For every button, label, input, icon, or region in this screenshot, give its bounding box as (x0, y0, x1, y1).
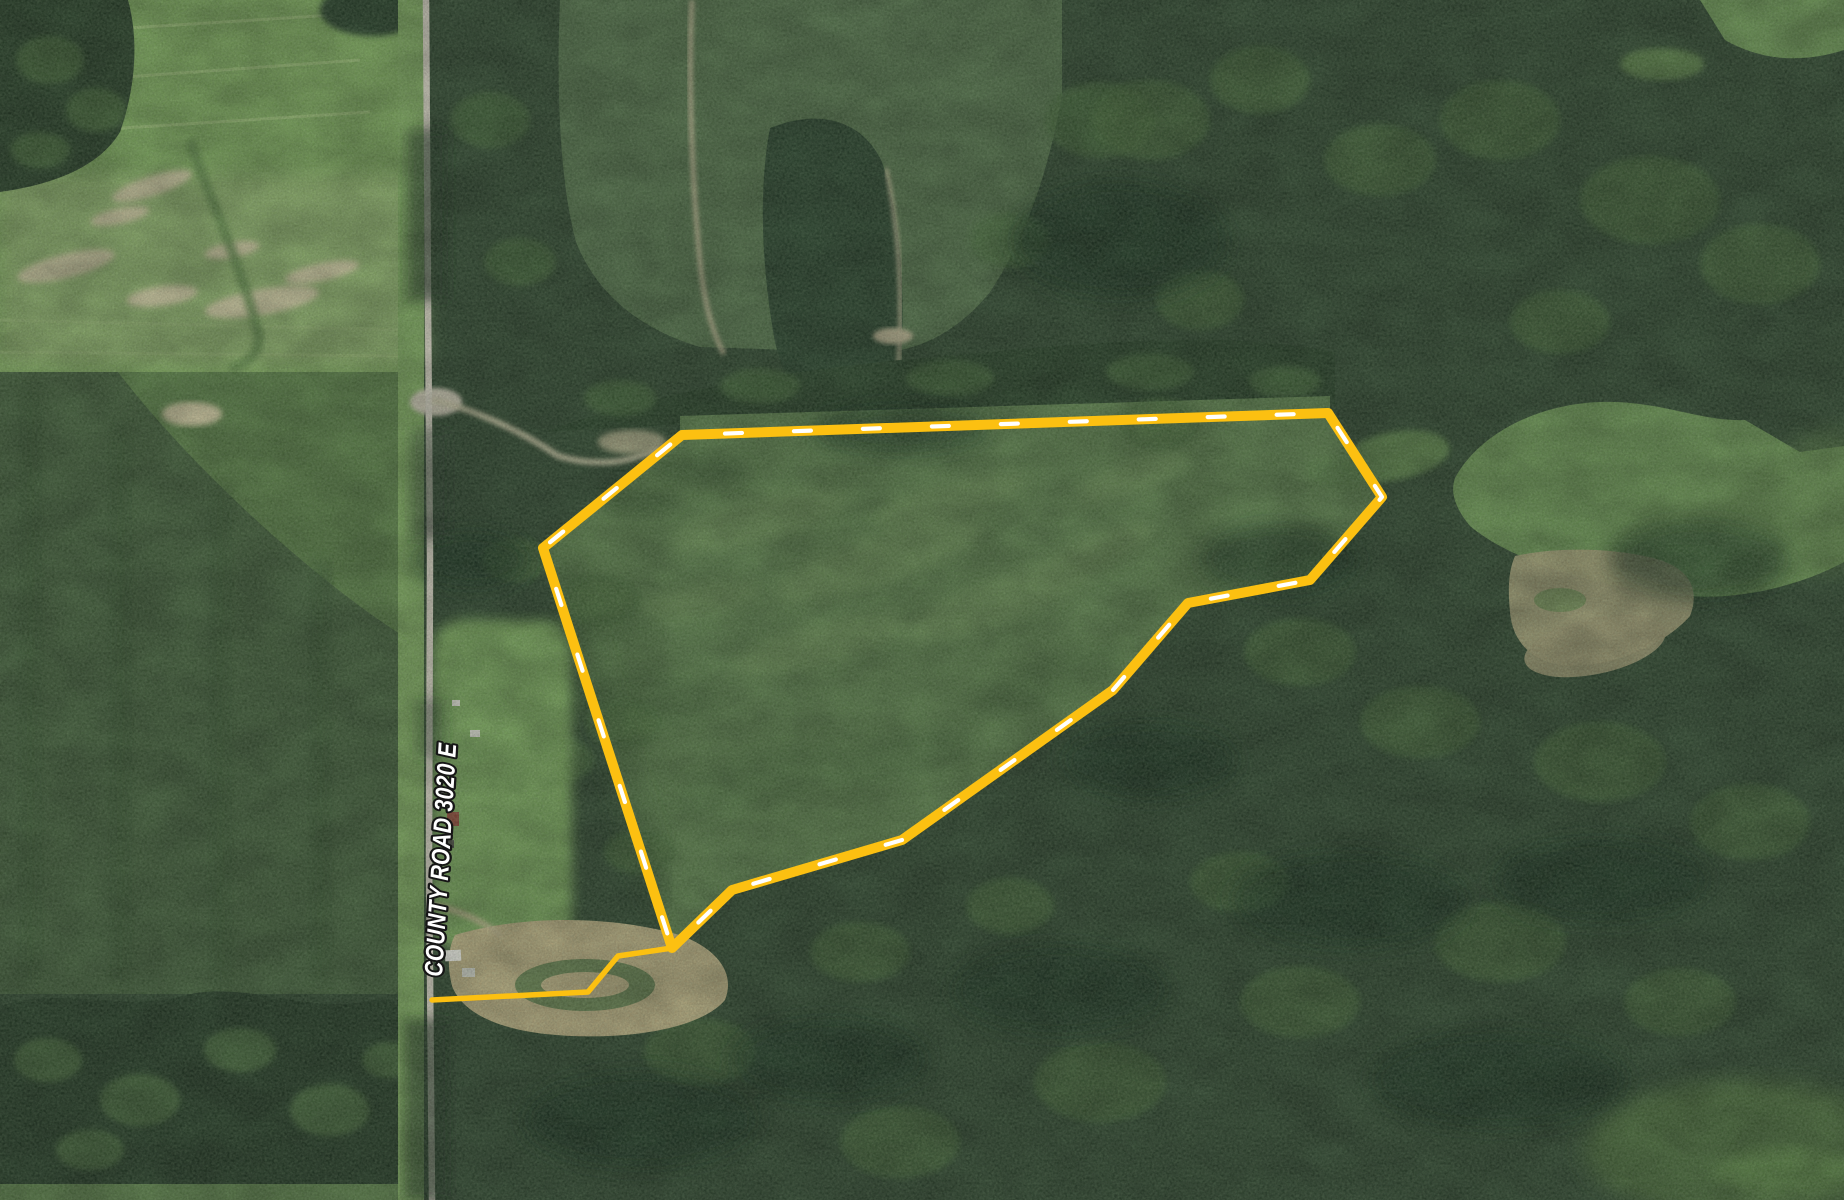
aerial-map-view[interactable]: COUNTY ROAD 3020 E (0, 0, 1844, 1200)
satellite-map[interactable]: COUNTY ROAD 3020 E (0, 0, 1844, 1200)
imagery-texture (0, 0, 1844, 1200)
